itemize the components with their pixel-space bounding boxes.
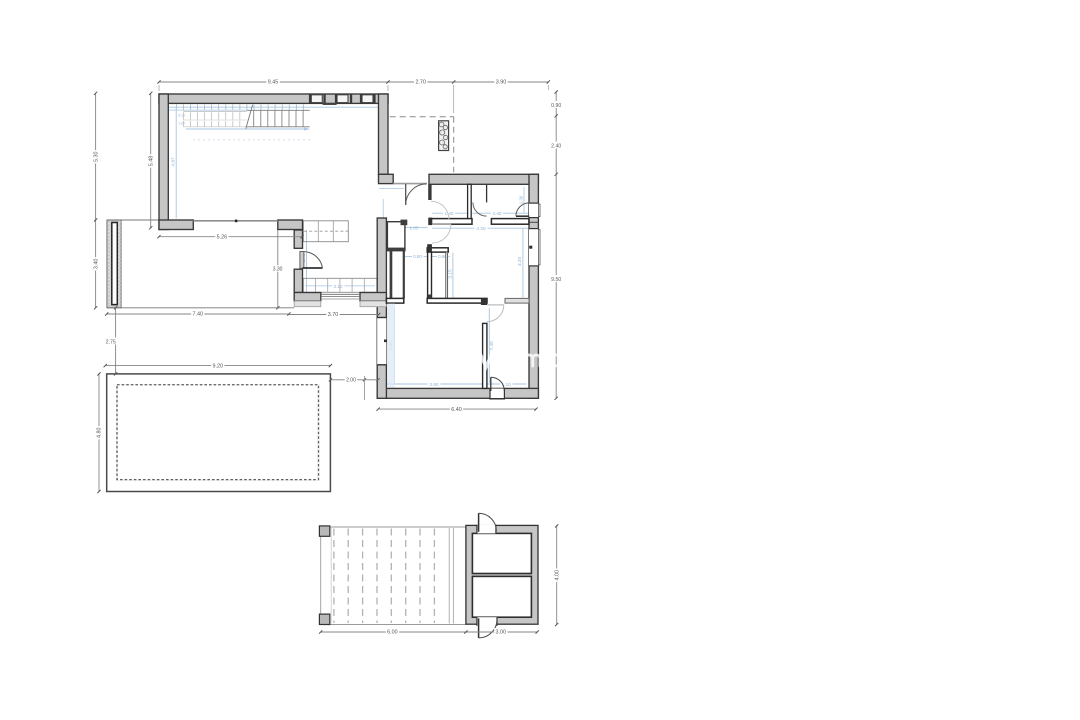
svg-text:5.26: 5.26 [217, 234, 228, 240]
svg-text:9.45: 9.45 [268, 80, 279, 86]
svg-text:1.00: 1.00 [178, 122, 185, 126]
svg-text:0.80: 0.80 [413, 254, 422, 259]
svg-text:3.40: 3.40 [93, 259, 99, 270]
svg-text:3.00: 3.00 [496, 630, 507, 636]
svg-text:1.40: 1.40 [445, 211, 454, 216]
svg-text:2.75: 2.75 [106, 340, 116, 346]
svg-text:4.80: 4.80 [97, 427, 103, 438]
svg-text:4.00: 4.00 [554, 570, 560, 581]
svg-text:3.20: 3.20 [517, 257, 523, 267]
svg-text:6.40: 6.40 [451, 407, 462, 413]
svg-text:2.40: 2.40 [551, 144, 561, 150]
svg-text:9.50: 9.50 [551, 277, 561, 283]
svg-text:7.40: 7.40 [193, 312, 204, 318]
svg-text:2.00: 2.00 [346, 377, 356, 383]
svg-text:4.87: 4.87 [170, 157, 176, 167]
svg-text:0.90: 0.90 [551, 103, 561, 109]
svg-text:6.00: 6.00 [387, 630, 398, 636]
svg-text:3.70: 3.70 [328, 312, 339, 318]
svg-text:9.20: 9.20 [213, 363, 224, 369]
svg-text:3.90: 3.90 [429, 382, 439, 388]
svg-text:0.18: 0.18 [178, 114, 185, 118]
svg-text:3.10: 3.10 [334, 284, 343, 289]
svg-text:3.30: 3.30 [273, 267, 283, 273]
svg-text:4.20: 4.20 [476, 226, 486, 232]
svg-text:5.30: 5.30 [93, 151, 99, 162]
svg-text:2.40: 2.40 [493, 211, 502, 216]
svg-text:2.70: 2.70 [415, 80, 426, 86]
svg-text:1.05: 1.05 [410, 225, 419, 230]
svg-text:1.30: 1.30 [518, 195, 523, 204]
svg-text:5.48: 5.48 [148, 156, 154, 167]
svg-text:3.90: 3.90 [496, 80, 507, 86]
svg-text:3.15: 3.15 [447, 269, 453, 279]
